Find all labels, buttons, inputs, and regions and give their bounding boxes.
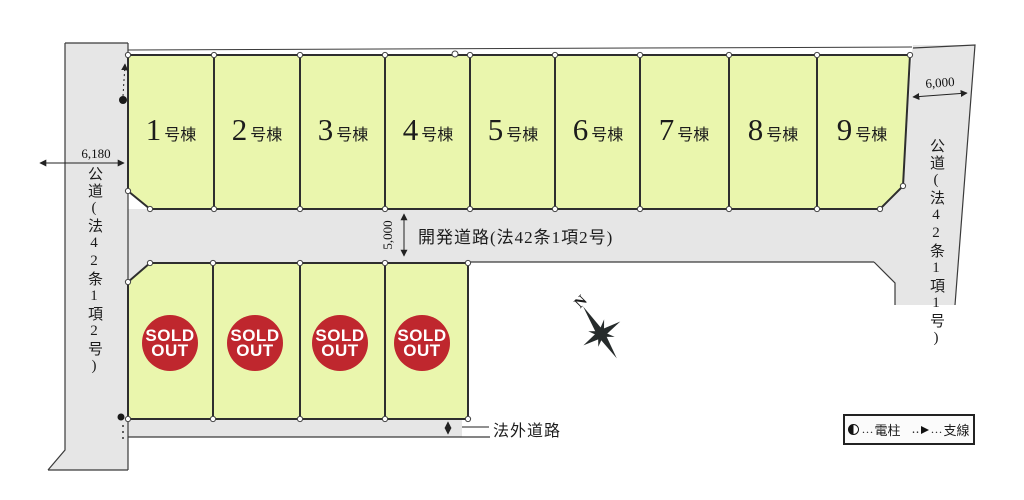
site-plan: 1号棟 2号棟 3号棟 4号棟 5号棟 6号棟 7号棟 8号棟 9号棟 SOLD…	[0, 0, 1024, 500]
lot-5-shape	[470, 55, 555, 209]
corner-marker	[297, 206, 302, 211]
outside-road-shape	[128, 418, 462, 437]
corner-marker	[726, 52, 731, 57]
corner-marker	[125, 279, 130, 284]
pole-dot	[118, 414, 125, 421]
corner-marker	[297, 416, 302, 421]
pole-dash-dot	[122, 425, 124, 427]
pole-marker-top	[452, 51, 458, 57]
pole-dot	[119, 96, 127, 104]
corner-marker	[382, 52, 387, 57]
corner-marker	[125, 416, 130, 421]
corner-marker	[125, 188, 130, 193]
sold-lot-2-shape	[213, 263, 300, 419]
sold-lot-3-shape	[300, 263, 385, 419]
corner-marker	[467, 206, 472, 211]
corner-marker	[210, 260, 215, 265]
corner-marker	[210, 416, 215, 421]
corner-marker	[465, 260, 470, 265]
corner-marker	[907, 52, 912, 57]
corner-marker	[382, 416, 387, 421]
sold-lot-4-shape	[385, 263, 468, 419]
pole-dash-dot	[122, 431, 124, 433]
corner-marker	[382, 260, 387, 265]
corner-marker	[552, 206, 557, 211]
lot-9-shape	[817, 55, 910, 209]
corner-marker	[382, 206, 387, 211]
lot-3-shape	[300, 55, 385, 209]
lot-6-shape	[555, 55, 640, 209]
corner-marker	[297, 260, 302, 265]
corner-marker	[900, 183, 905, 188]
corner-marker	[637, 52, 642, 57]
corner-marker	[877, 206, 882, 211]
corner-marker	[211, 52, 216, 57]
corner-marker	[465, 416, 470, 421]
corner-marker	[467, 52, 472, 57]
lot-2-shape	[214, 55, 300, 209]
pole-dash-dot	[122, 437, 124, 439]
corner-marker	[211, 206, 216, 211]
corner-marker	[147, 260, 152, 265]
lot-7-shape	[640, 55, 729, 209]
corner-marker	[125, 52, 130, 57]
lot-4-shape	[385, 55, 470, 209]
lot-shapes-sold-row	[128, 263, 468, 419]
corner-marker	[552, 52, 557, 57]
lot-shapes-top-row	[128, 55, 910, 209]
site-plan-drawing	[0, 0, 1024, 500]
corner-marker	[814, 206, 819, 211]
lot-1-shape	[128, 55, 214, 209]
corner-marker	[297, 52, 302, 57]
top-parallel-line	[128, 47, 912, 50]
sold-lot-1-shape	[128, 263, 213, 419]
corner-marker	[726, 206, 731, 211]
compass-star	[565, 294, 636, 370]
left-road-shape	[48, 43, 128, 470]
corner-marker	[814, 52, 819, 57]
lot-8-shape	[729, 55, 817, 209]
corner-marker	[637, 206, 642, 211]
corner-marker	[147, 206, 152, 211]
